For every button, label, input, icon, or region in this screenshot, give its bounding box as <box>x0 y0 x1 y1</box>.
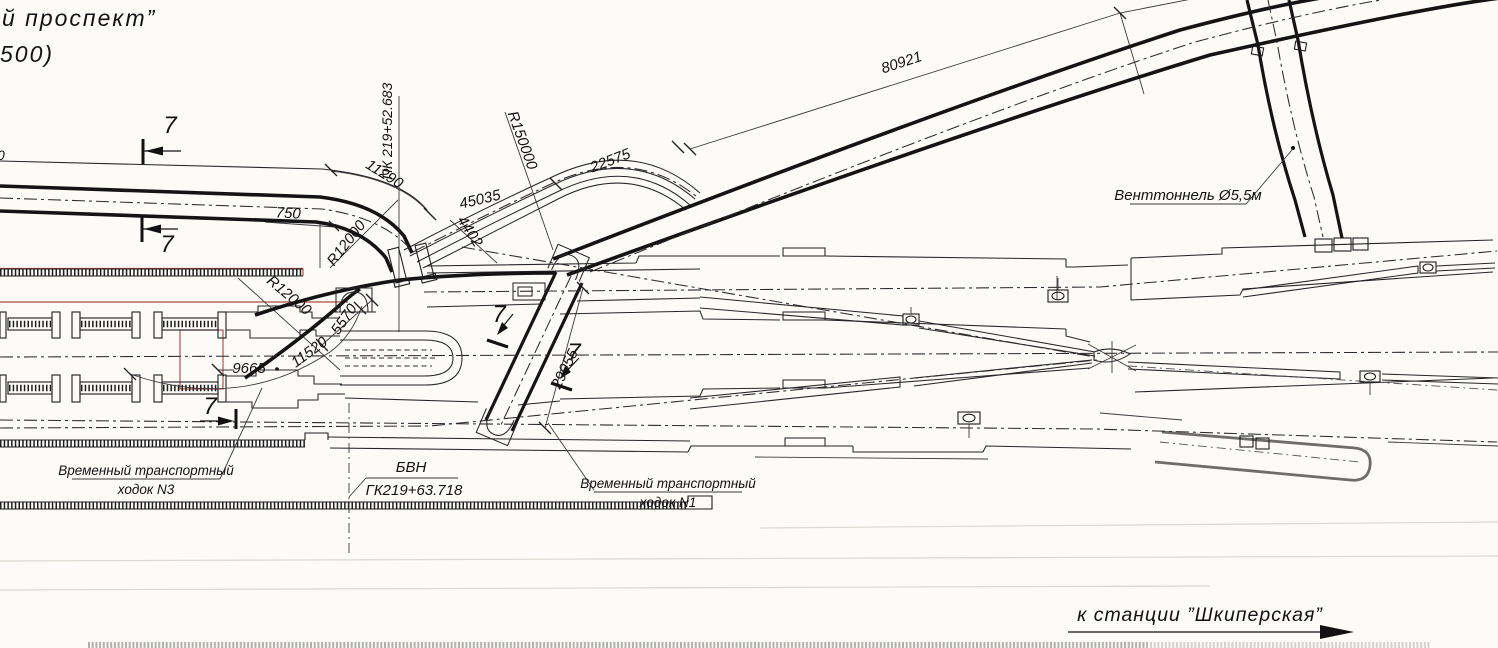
direction-label: к станции ”Шкиперская” <box>1077 604 1323 626</box>
drawing-sheet: 7 7 7 7 7 <box>0 0 1498 648</box>
section-mark-7-left: 7 <box>142 216 178 258</box>
section-label: 7 <box>203 393 218 420</box>
section-label: 7 <box>160 231 175 258</box>
thick-tunnel-walls <box>0 0 1498 480</box>
dim-r12000-b: R12000 <box>263 272 315 319</box>
edge-fragment: 0 <box>0 147 5 163</box>
passage-n1-line1: Временный транспортный <box>580 476 756 491</box>
switch-symbol <box>903 307 919 325</box>
switch-symbol <box>1048 278 1068 302</box>
dim-9665: 9665 <box>232 360 266 377</box>
platform-wall-segments-row2 <box>0 370 345 408</box>
section-label: 7 <box>163 112 178 139</box>
vent-tunnel-label: Венттоннель Ø5,5м <box>1114 187 1261 204</box>
bvn-picket: ГК219+63.718 <box>366 482 463 499</box>
centerlines <box>0 0 1498 462</box>
switch-symbol <box>1420 262 1436 273</box>
title-fragment-scale: 500) <box>0 41 54 67</box>
dim-29055: 29055 <box>548 346 582 392</box>
dim-5570: 5570 <box>328 300 361 338</box>
tunnel-plan-svg: 7 7 7 7 7 <box>0 0 1498 648</box>
passage-n1-line2: ходок N1 <box>639 495 696 510</box>
thin-linework <box>0 0 1498 459</box>
bvn-title: БВН <box>396 459 427 476</box>
dim-11520: 11520 <box>288 333 331 371</box>
platform-wall-segments-row1 <box>0 306 340 338</box>
section-mark-7-top: 7 <box>143 112 181 164</box>
dim-80921: 80921 <box>879 48 924 77</box>
dim-45035: 45035 <box>458 186 503 212</box>
title-fragment-prospekt: й проспект” <box>2 5 156 31</box>
section-label: 7 <box>492 301 507 328</box>
scan-artifacts <box>0 522 1498 645</box>
passage-n3-line2: ходок N3 <box>117 482 175 497</box>
passage-n3-line1: Временный транспортный <box>58 463 234 478</box>
dim-750: 750 <box>275 204 302 222</box>
dim-4402: 4402 <box>454 213 487 251</box>
switch-symbol <box>958 412 980 438</box>
dim-r150000: R150000 <box>504 109 541 173</box>
section-mark-7-shaft-upper: 7 <box>487 301 513 347</box>
annotations: й проспект” 500) 0 ПК 219+52.683 750 112… <box>0 5 1323 626</box>
dim-22575: 22575 <box>587 145 634 176</box>
